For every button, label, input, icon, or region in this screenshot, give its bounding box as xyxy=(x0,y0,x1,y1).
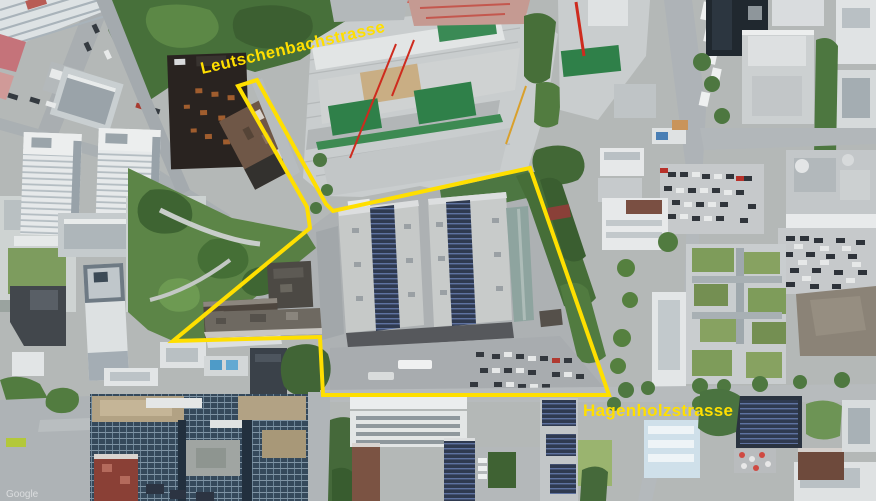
svg-text:Google: Google xyxy=(6,489,39,500)
svg-text:Hagenholzstrasse: Hagenholzstrasse xyxy=(583,401,733,420)
